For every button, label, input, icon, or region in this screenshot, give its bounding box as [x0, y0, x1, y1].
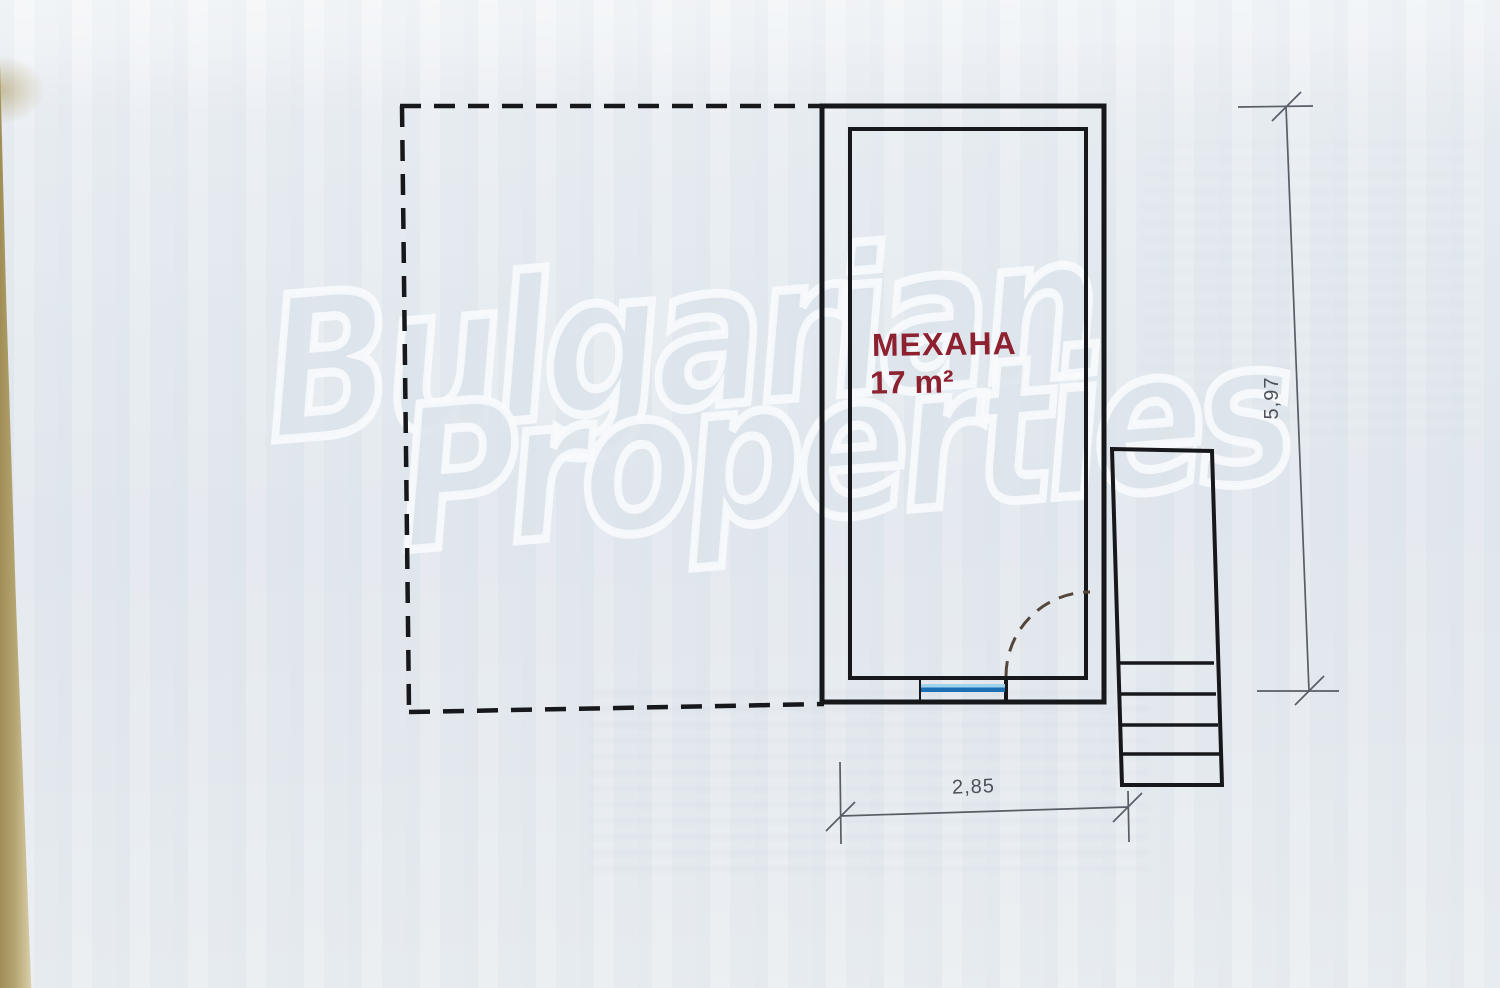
room-area-label: 17 m²	[870, 363, 954, 401]
room-outer-wall	[822, 106, 1104, 702]
scanned-floor-plan-page: Bulgarian Properties	[0, 0, 1500, 988]
floor-plan-drawing	[0, 0, 1500, 988]
dashed-area-bottom-edge	[409, 704, 824, 712]
window-glazing-light	[921, 684, 1005, 688]
dim-width-ext-left	[840, 762, 841, 844]
dim-height-line	[1286, 106, 1309, 691]
door-swing-arc	[1006, 592, 1090, 676]
staircase-outline	[1112, 449, 1222, 785]
room-name-label: МЕХАНА	[872, 325, 1017, 364]
dimension-width-label: 2,85	[952, 775, 996, 799]
room-inner-wall	[850, 129, 1086, 678]
dashed-area-left-edge	[402, 106, 409, 710]
dim-height-ext-top	[1238, 106, 1313, 107]
dim-width-line	[840, 807, 1128, 816]
dim-width-ext-right	[1128, 791, 1129, 842]
dimension-height-label: 5,97	[1261, 363, 1285, 433]
window-glazing-dark	[921, 688, 1005, 693]
